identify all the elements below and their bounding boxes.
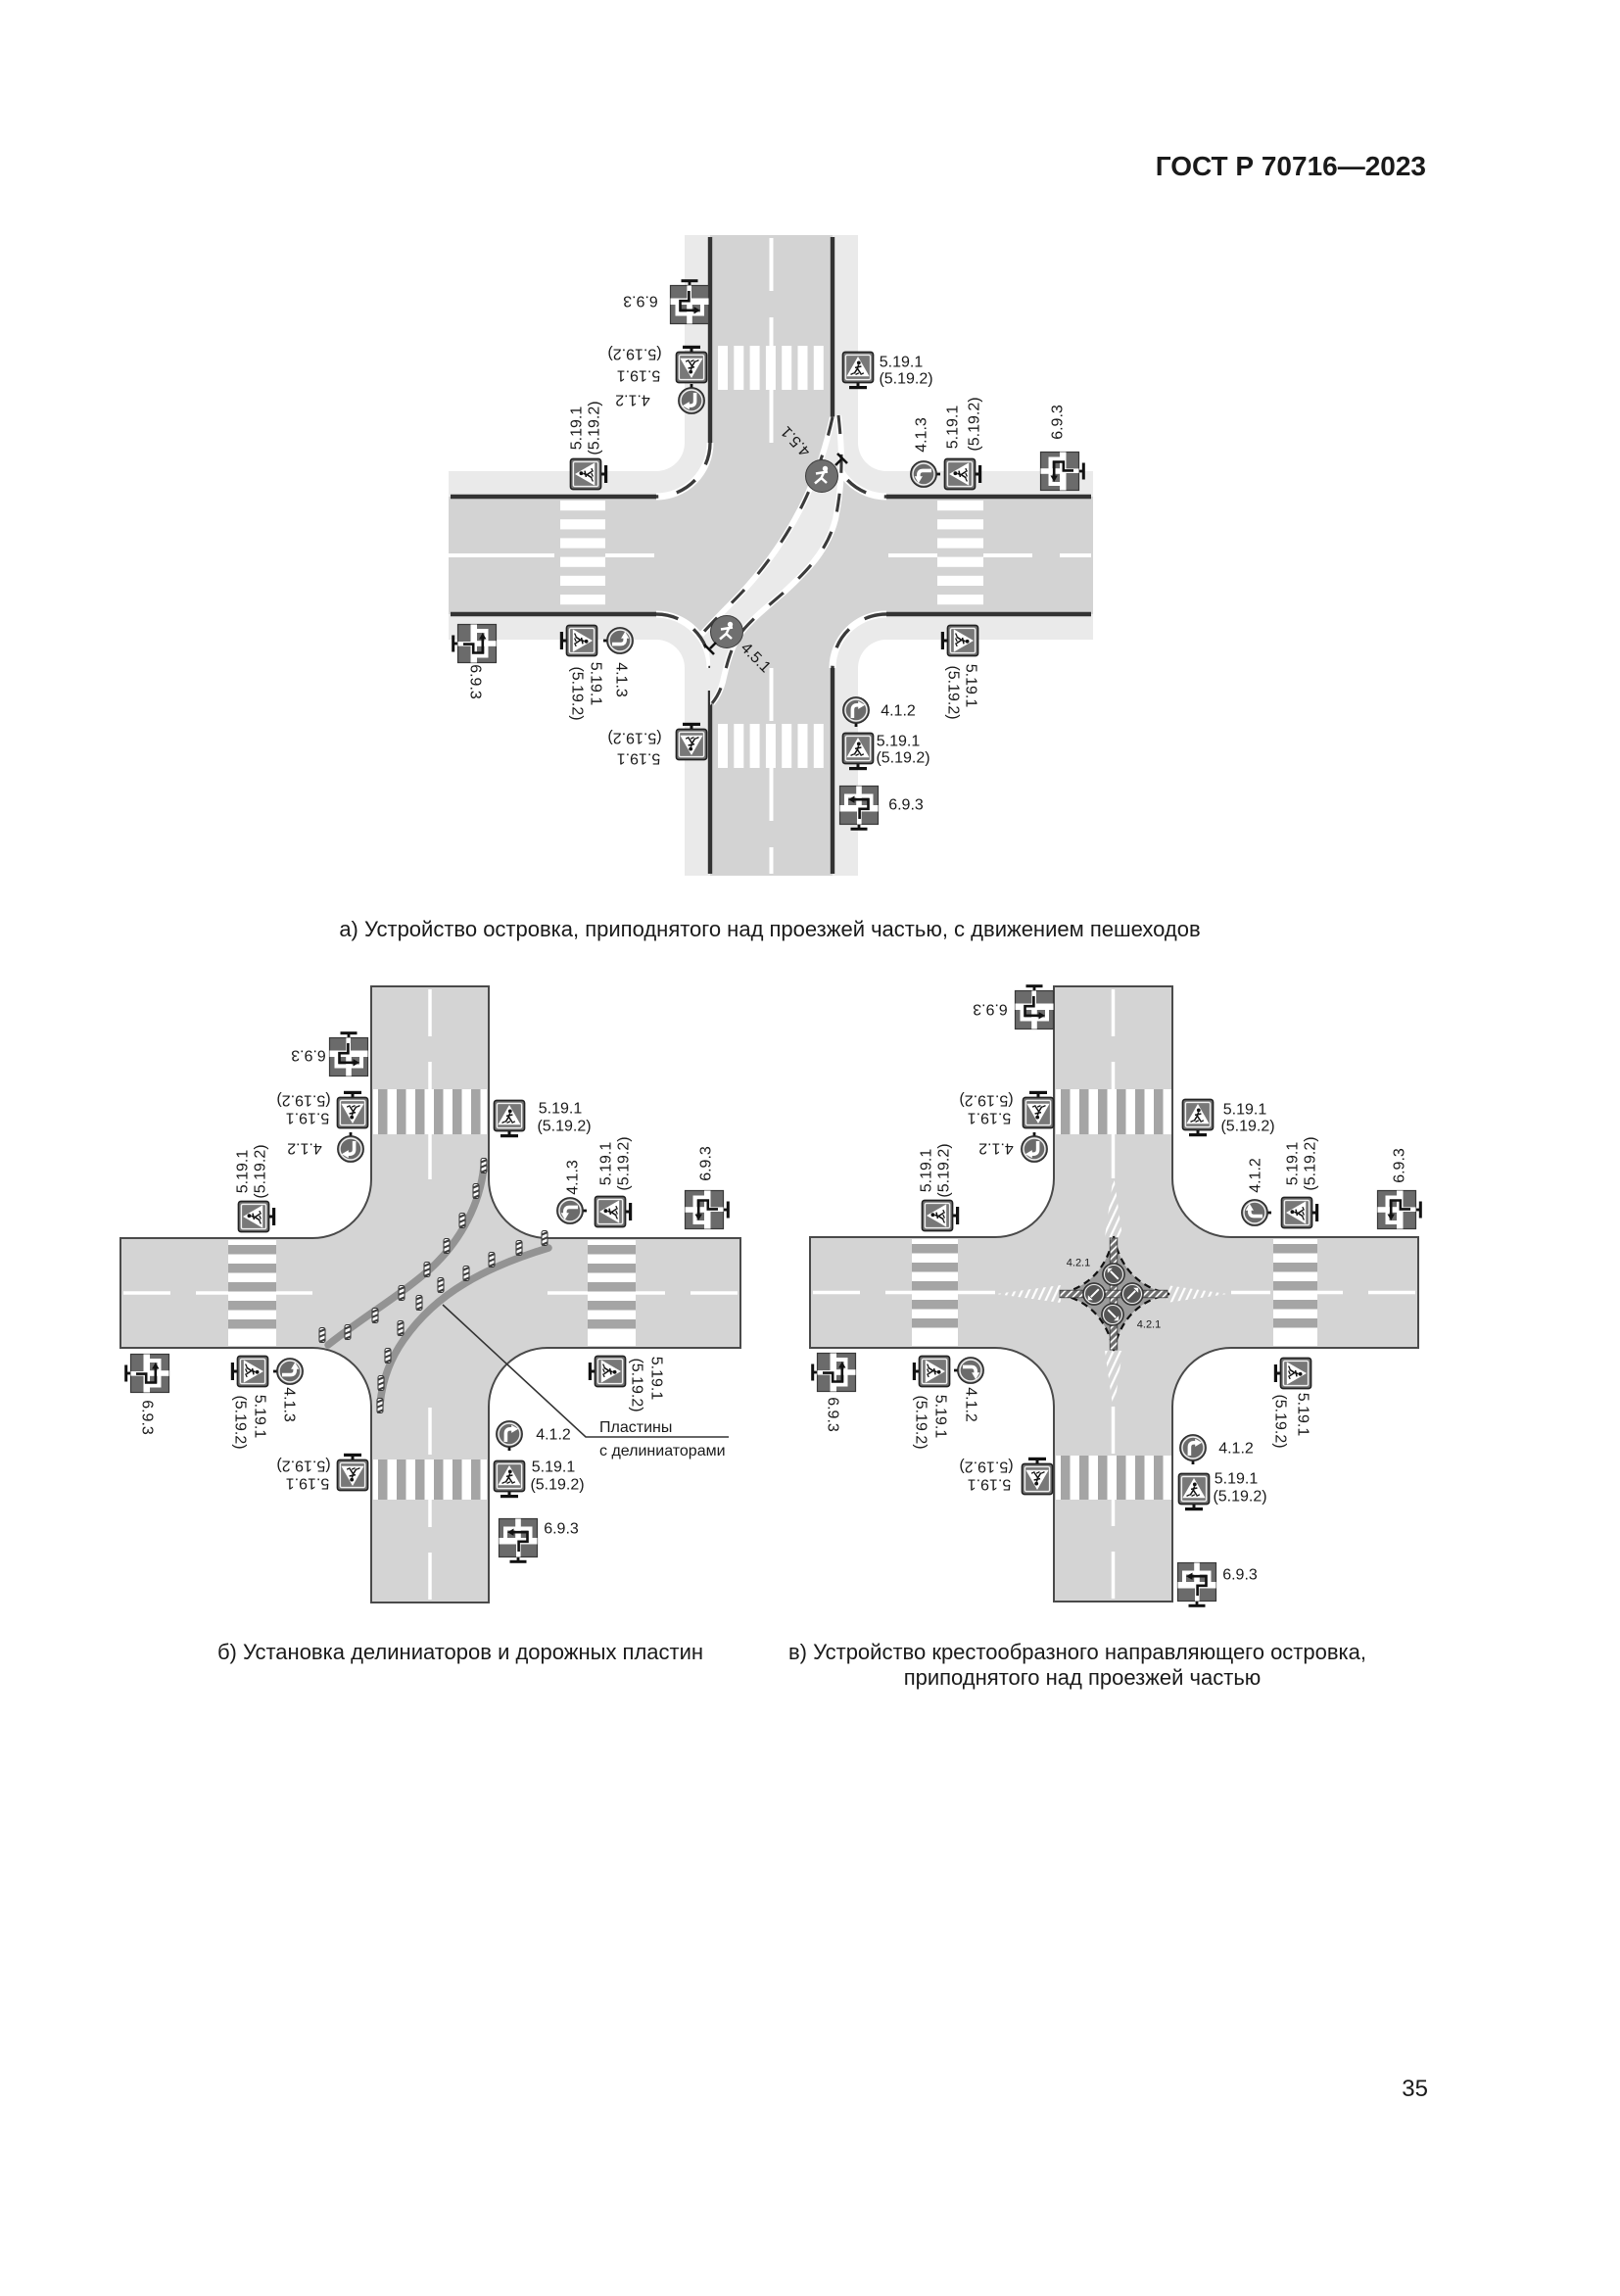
- svg-text:(5.19.2): (5.19.2): [1272, 1394, 1289, 1448]
- svg-text:5.19.1: 5.19.1: [877, 734, 921, 750]
- svg-text:5.19.1: 5.19.1: [286, 1475, 330, 1492]
- svg-text:(5.19.2): (5.19.2): [1303, 1136, 1319, 1190]
- svg-text:(5.19.2): (5.19.2): [607, 730, 661, 746]
- svg-text:б) Установка делиниаторов и до: б) Установка делиниаторов и дорожных пла…: [217, 1640, 703, 1664]
- svg-text:4.1.2: 4.1.2: [978, 1140, 1014, 1157]
- svg-text:6.9.3: 6.9.3: [467, 664, 484, 699]
- svg-text:6.9.3: 6.9.3: [139, 1400, 156, 1435]
- svg-text:6.9.3: 6.9.3: [623, 293, 658, 310]
- svg-text:(5.19.2): (5.19.2): [537, 1119, 591, 1135]
- svg-text:6.9.3: 6.9.3: [1050, 405, 1067, 440]
- svg-text:5.19.1: 5.19.1: [919, 1149, 935, 1193]
- svg-text:5.19.1: 5.19.1: [617, 750, 661, 767]
- svg-text:5.19.1: 5.19.1: [1285, 1142, 1302, 1186]
- svg-text:(5.19.2): (5.19.2): [530, 1477, 584, 1494]
- svg-text:6.9.3: 6.9.3: [973, 1001, 1008, 1018]
- svg-text:5.19.1: 5.19.1: [617, 367, 661, 384]
- svg-text:(5.19.2): (5.19.2): [1220, 1119, 1274, 1135]
- svg-text:5.19.1: 5.19.1: [932, 1395, 949, 1439]
- svg-text:4.1.2: 4.1.2: [615, 392, 650, 408]
- svg-text:4.1.2: 4.1.2: [1248, 1158, 1264, 1193]
- svg-text:в) Устройство крестообразного: в) Устройство крестообразного направляющ…: [788, 1640, 1366, 1664]
- svg-text:(5.19.2): (5.19.2): [959, 1092, 1013, 1109]
- svg-text:5.19.1: 5.19.1: [963, 664, 979, 708]
- svg-text:а) Устройство островка, припод: а) Устройство островка, приподнятого над…: [339, 917, 1200, 941]
- svg-text:(5.19.2): (5.19.2): [587, 401, 603, 454]
- svg-text:5.19.1: 5.19.1: [286, 1110, 330, 1126]
- svg-text:5.19.1: 5.19.1: [1223, 1102, 1267, 1119]
- svg-text:5.19.1: 5.19.1: [532, 1459, 576, 1476]
- svg-text:(5.19.2): (5.19.2): [629, 1358, 645, 1411]
- svg-text:(5.19.2): (5.19.2): [232, 1395, 249, 1449]
- svg-text:35: 35: [1402, 2076, 1428, 2102]
- svg-text:(5.19.2): (5.19.2): [569, 666, 586, 720]
- svg-text:(5.19.2): (5.19.2): [959, 1459, 1013, 1475]
- svg-text:(5.19.2): (5.19.2): [253, 1144, 269, 1198]
- svg-text:6.9.3: 6.9.3: [1222, 1567, 1258, 1584]
- svg-text:6.9.3: 6.9.3: [825, 1397, 841, 1432]
- svg-text:6.9.3: 6.9.3: [698, 1146, 715, 1181]
- svg-text:6.9.3: 6.9.3: [291, 1047, 326, 1064]
- svg-text:5.19.1: 5.19.1: [235, 1150, 252, 1194]
- svg-text:(5.19.2): (5.19.2): [913, 1395, 929, 1449]
- svg-text:с делиниаторами: с делиниаторами: [599, 1443, 726, 1459]
- svg-text:6.9.3: 6.9.3: [888, 797, 924, 814]
- svg-text:4.1.3: 4.1.3: [565, 1160, 582, 1195]
- svg-text:4.1.2: 4.1.2: [287, 1140, 322, 1157]
- svg-text:4.1.2: 4.1.2: [1218, 1441, 1254, 1458]
- svg-text:4.1.3: 4.1.3: [613, 662, 630, 697]
- svg-text:4.1.2: 4.1.2: [536, 1427, 571, 1444]
- svg-text:5.19.1: 5.19.1: [252, 1395, 268, 1439]
- svg-text:5.19.1: 5.19.1: [880, 355, 924, 371]
- svg-text:(5.19.2): (5.19.2): [967, 397, 983, 451]
- svg-text:4.1.3: 4.1.3: [281, 1387, 298, 1422]
- svg-text:(5.19.2): (5.19.2): [1213, 1489, 1266, 1506]
- svg-text:(5.19.2): (5.19.2): [945, 665, 962, 719]
- svg-text:6.9.3: 6.9.3: [1392, 1148, 1408, 1183]
- svg-text:4.1.2: 4.1.2: [963, 1387, 979, 1422]
- svg-text:5.19.1: 5.19.1: [1295, 1393, 1311, 1437]
- svg-text:(5.19.2): (5.19.2): [276, 1092, 330, 1109]
- svg-text:5.19.1: 5.19.1: [648, 1357, 665, 1401]
- svg-text:(5.19.2): (5.19.2): [276, 1458, 330, 1474]
- svg-text:5.19.1: 5.19.1: [569, 407, 586, 451]
- svg-text:(5.19.2): (5.19.2): [876, 750, 929, 767]
- svg-text:(5.19.2): (5.19.2): [936, 1143, 953, 1197]
- svg-text:приподнятого над проезжей част: приподнятого над проезжей частью: [904, 1665, 1262, 1690]
- svg-text:4.1.3: 4.1.3: [914, 417, 930, 453]
- svg-text:4.1.2: 4.1.2: [881, 703, 916, 720]
- svg-text:5.19.1: 5.19.1: [968, 1110, 1012, 1126]
- svg-text:(5.19.2): (5.19.2): [616, 1136, 633, 1190]
- svg-text:ГОСТ Р 70716—2023: ГОСТ Р 70716—2023: [1156, 151, 1426, 181]
- svg-text:5.19.1: 5.19.1: [1215, 1471, 1259, 1488]
- svg-text:5.19.1: 5.19.1: [539, 1101, 583, 1118]
- svg-text:4.2.1: 4.2.1: [1067, 1258, 1090, 1269]
- svg-text:5.19.1: 5.19.1: [968, 1476, 1012, 1493]
- svg-text:Пластины: Пластины: [599, 1419, 672, 1436]
- svg-text:(5.19.2): (5.19.2): [879, 371, 932, 388]
- svg-text:5.19.1: 5.19.1: [588, 662, 604, 706]
- svg-text:4.2.1: 4.2.1: [1137, 1319, 1161, 1331]
- svg-text:(5.19.2): (5.19.2): [607, 346, 661, 362]
- svg-text:5.19.1: 5.19.1: [598, 1142, 615, 1186]
- svg-text:5.19.1: 5.19.1: [945, 406, 962, 450]
- svg-text:6.9.3: 6.9.3: [544, 1521, 579, 1538]
